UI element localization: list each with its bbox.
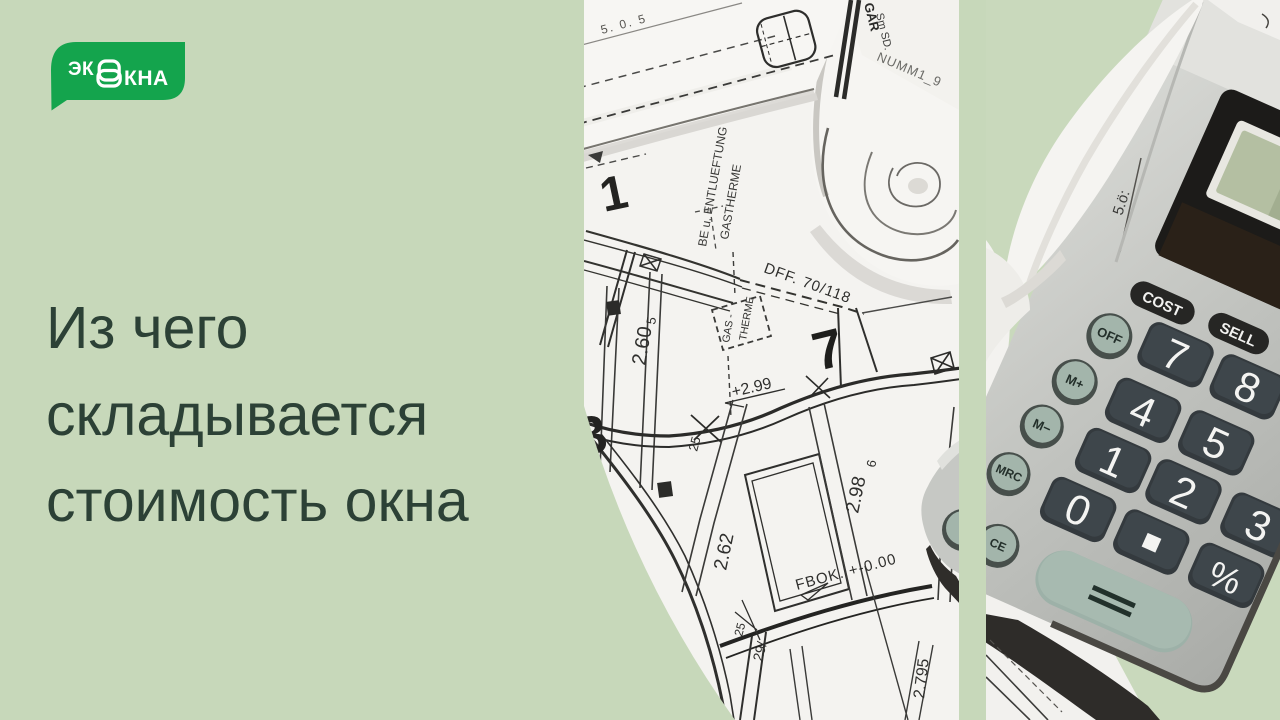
svg-text:складывается: складывается xyxy=(46,382,428,448)
svg-text:Из чего: Из чего xyxy=(46,295,248,361)
svg-text:стоимость окна: стоимость окна xyxy=(46,468,469,534)
svg-text:ЭК: ЭК xyxy=(68,59,94,80)
svg-text:КНА: КНА xyxy=(124,67,169,90)
